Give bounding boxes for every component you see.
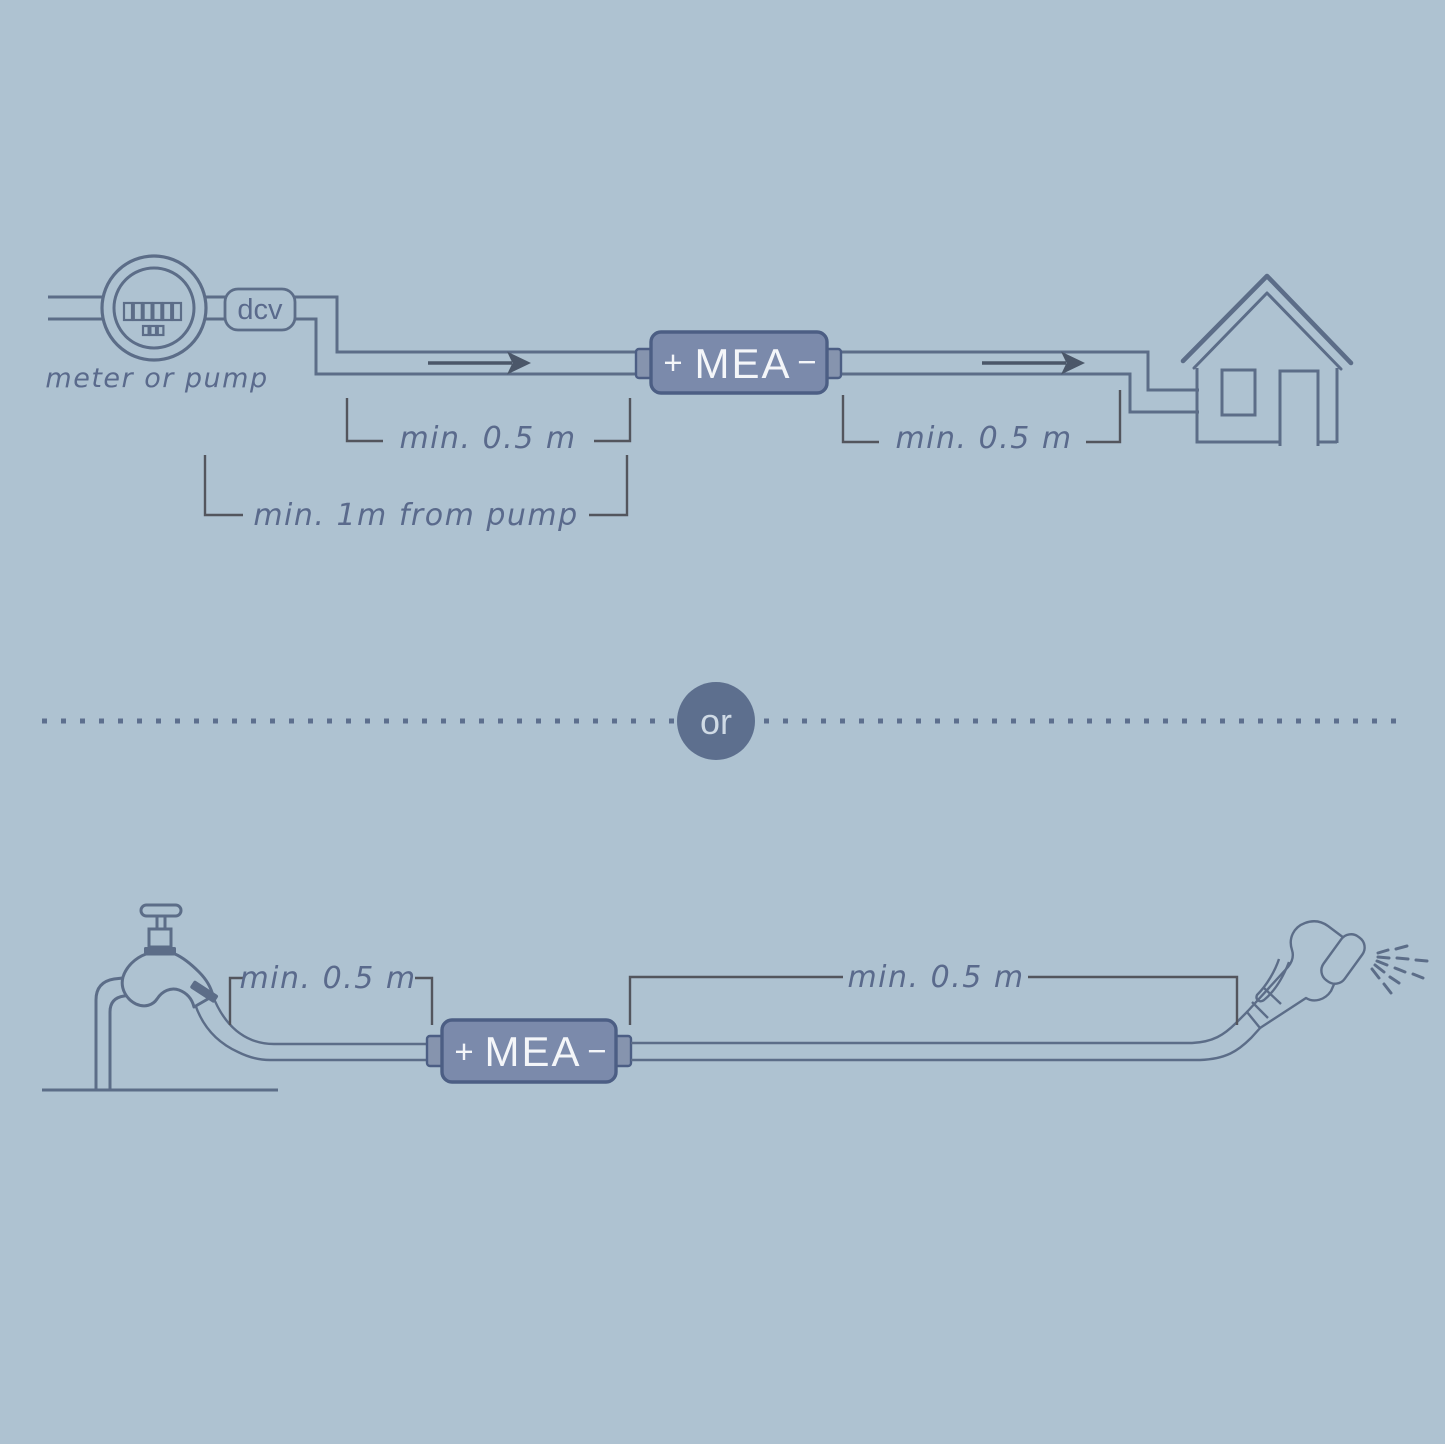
house-window: [1222, 370, 1255, 415]
mea-name: MEA: [484, 1028, 581, 1075]
or-divider: or: [42, 682, 1404, 760]
spray-mist: [1372, 946, 1427, 993]
dimension-bracket-before-device: min. 0.5 m: [230, 961, 432, 1025]
distance-label: min. 0.5 m: [847, 960, 1024, 995]
mea-device: + MEA −: [427, 1020, 631, 1082]
flow-arrow-icon: [982, 352, 1085, 375]
spray-gun-icon: [1247, 921, 1427, 1028]
hose-icon: [631, 1011, 1261, 1060]
house-icon: [1183, 276, 1351, 446]
installation-diagram: meter or pump dcv + MEA −: [0, 0, 1445, 1444]
dcv-label: dcv: [237, 294, 283, 326]
pump-distance-bracket: min. 1m from pump: [205, 455, 627, 533]
mea-minus: −: [587, 1032, 606, 1069]
bottom-diagram: min. 0.5 m + MEA − min. 0.5 m: [42, 905, 1427, 1090]
tap-handle: [141, 905, 181, 916]
mea-device: + MEA −: [636, 332, 841, 393]
dimension-bracket-after-device: min. 0.5 m: [630, 960, 1237, 1025]
dimension-bracket-before-device: min. 0.5 m: [347, 398, 630, 456]
distance-label: min. 0.5 m: [239, 961, 416, 996]
dimension-bracket-after-device: min. 0.5 m: [843, 390, 1120, 456]
mea-name: MEA: [694, 340, 791, 387]
supply-pipe: [48, 297, 1199, 412]
distance-label: min. 0.5 m: [399, 421, 576, 456]
mea-plus: +: [663, 344, 682, 381]
tap-icon: [122, 905, 219, 1007]
mea-minus: −: [797, 343, 816, 380]
meter-label: meter or pump: [45, 363, 268, 394]
house-door: [1280, 371, 1318, 446]
double-check-valve-icon: dcv: [225, 289, 295, 330]
distance-label: min. 0.5 m: [895, 421, 1072, 456]
top-diagram: meter or pump dcv + MEA −: [45, 256, 1351, 533]
or-label: or: [700, 701, 732, 742]
flow-arrow-icon: [428, 352, 531, 375]
mea-plus: +: [454, 1033, 473, 1070]
pump-distance-label: min. 1m from pump: [253, 498, 578, 533]
